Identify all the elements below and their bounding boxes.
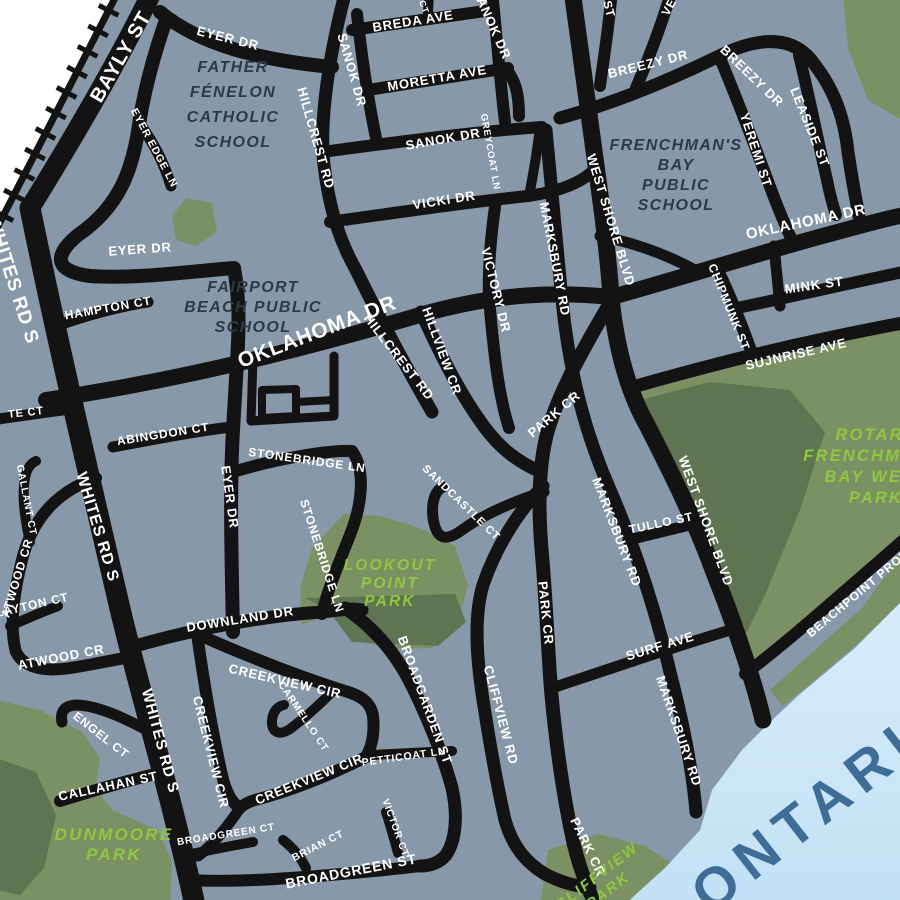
label-line: PARK — [364, 593, 416, 610]
label-line: SCHOOL — [195, 134, 272, 151]
label-line: POINT — [361, 575, 419, 592]
label-line: DUNMOORE — [55, 825, 174, 844]
label-line: SCHOOL — [215, 319, 292, 336]
road-school-block-stub — [296, 400, 334, 402]
label-line: FATHER — [197, 59, 268, 76]
label-line: ROTARY — [835, 426, 900, 444]
label-line: FAIRPORT — [207, 279, 299, 296]
label-line: FRENCHMAN'S — [803, 447, 900, 465]
label-line: BEACH PUBLIC — [184, 299, 322, 316]
label-line: CATHOLIC — [187, 109, 280, 126]
neighbourhood-map: BAYLY STEYER DREYER DREYER EDGE LNWHITES… — [0, 0, 900, 900]
label-line: FRENCHMAN'S — [610, 137, 743, 154]
label-line: BAY — [658, 157, 695, 174]
label-line: BAY WEST — [824, 468, 900, 486]
label-line: LOOKOUT — [344, 557, 437, 574]
label-line: PUBLIC — [642, 177, 710, 194]
label-line: FÉNELON — [190, 82, 276, 101]
label-line: PARK — [849, 489, 900, 507]
road-okla-mink-link — [774, 246, 780, 306]
label-line: SCHOOL — [638, 197, 715, 214]
map-poster: Frenchman's Bay / West Shore neighbourho… — [0, 0, 900, 900]
label-line: PARK — [86, 845, 142, 864]
